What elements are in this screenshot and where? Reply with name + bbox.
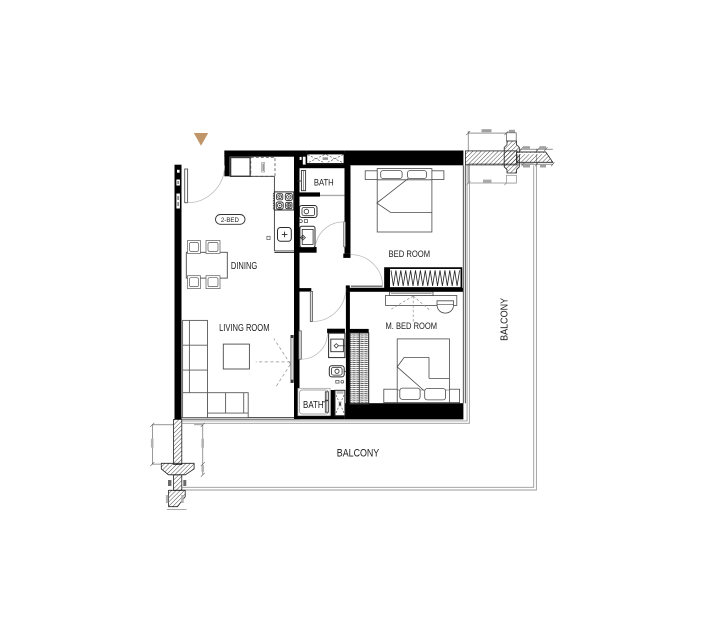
svg-text:BATH: BATH <box>303 400 324 411</box>
svg-text:BATH: BATH <box>314 178 334 189</box>
svg-text:LIVING ROOM: LIVING ROOM <box>219 323 269 334</box>
svg-text:M. BED ROOM: M. BED ROOM <box>386 321 438 332</box>
svg-text:BALCONY: BALCONY <box>337 448 380 460</box>
svg-text:DINING: DINING <box>231 261 257 272</box>
svg-text:BED ROOM: BED ROOM <box>389 249 431 260</box>
svg-text:BALCONY: BALCONY <box>498 298 510 341</box>
svg-text:2-BED: 2-BED <box>221 217 239 224</box>
